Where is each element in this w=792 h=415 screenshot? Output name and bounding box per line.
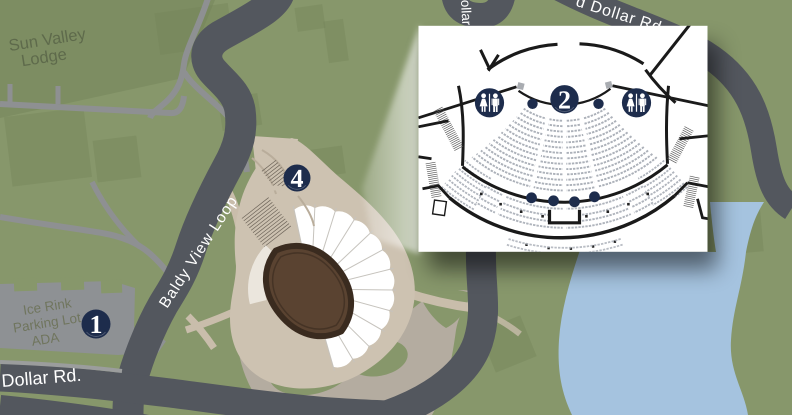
- svg-text:1: 1: [90, 310, 103, 339]
- svg-text:2: 2: [558, 85, 571, 114]
- svg-text:4: 4: [291, 164, 304, 193]
- svg-text:ollar: ollar: [458, 0, 474, 26]
